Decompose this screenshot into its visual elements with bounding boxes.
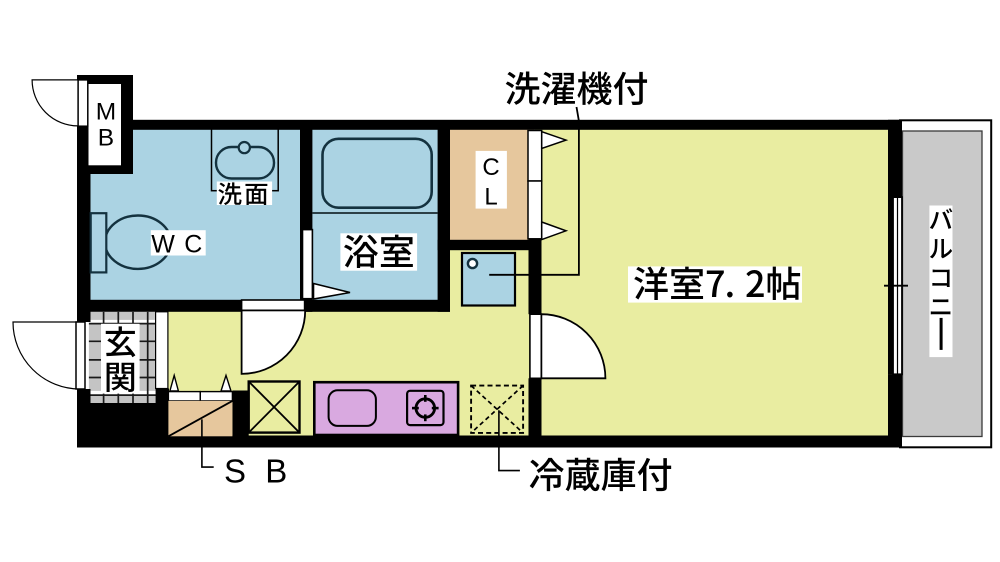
svg-text:C: C — [482, 154, 499, 181]
svg-text:B: B — [98, 124, 114, 151]
svg-text:L: L — [484, 183, 497, 210]
svg-text:M: M — [96, 99, 116, 126]
svg-text:B: B — [265, 452, 287, 489]
svg-text:S: S — [224, 452, 246, 489]
svg-text:W: W — [151, 231, 175, 259]
svg-text:C: C — [184, 231, 202, 259]
